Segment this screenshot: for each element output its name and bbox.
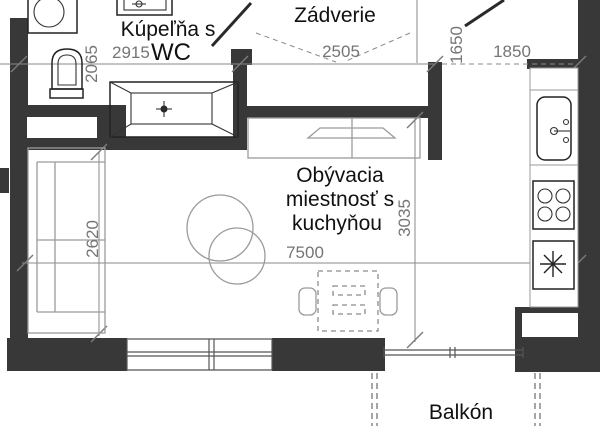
floor-plan: Kúpeľňa s 2915 WC 2065 Zádverie 2505 165…: [0, 0, 600, 426]
place-setting: [333, 305, 365, 314]
dining-table: [318, 271, 378, 331]
washing-machine-drum: [34, 0, 64, 27]
wall-bottom-left-pier: [7, 338, 127, 371]
living-depth-dim: 3035: [395, 199, 414, 237]
toilet-seat: [58, 55, 76, 85]
washing-machine-icon: [28, 0, 77, 33]
kitchen-width-dim: 1850: [493, 42, 531, 61]
wall-bathroom-bottom: [100, 137, 247, 150]
wall-bottom-middle-pier: [272, 338, 385, 371]
living-width-dim: 7500: [286, 243, 324, 262]
bathroom-label-wc: WC: [151, 39, 191, 66]
wall-left-stub: [0, 168, 9, 193]
balcony-door: [384, 347, 523, 358]
washbasin-outer: [117, 0, 172, 15]
washbasin-icon: [117, 0, 172, 15]
bathtub-slope: [110, 82, 131, 93]
bathroom-width-dim: 2915: [112, 43, 150, 62]
place-setting: [333, 286, 365, 295]
hall-label: Zádverie: [294, 4, 376, 27]
sofa-side-dim: 2620: [83, 220, 102, 258]
window-living: [127, 339, 272, 370]
tv-sideboard: [248, 118, 420, 158]
floor-plan-drawing: Kúpeľňa s 2915 WC 2065 Zádverie 2505 165…: [0, 0, 600, 426]
dining-chair: [380, 288, 397, 315]
washbasin-inner: [124, 0, 166, 10]
living-label-line1: Obývacia: [296, 164, 384, 187]
wall-bathroom-right: [233, 58, 247, 150]
kitchen-fixtures: [530, 68, 578, 307]
bathtub-icon: [110, 82, 238, 137]
utility-niche: [522, 313, 578, 337]
bathroom-depth-dim: 2065: [82, 45, 101, 83]
hall-width-dim: 2505: [322, 42, 360, 61]
wall-hall-right: [428, 62, 442, 160]
shaft-niche: [27, 117, 97, 138]
armchair: [187, 195, 265, 284]
wall-hall-bottom: [233, 106, 442, 118]
toilet-base: [50, 89, 83, 98]
balcony-label: Balkón: [429, 401, 493, 424]
bathroom-door-leaf: [212, 3, 251, 46]
dining-chair: [299, 288, 316, 315]
living-label-line3: kuchyňou: [292, 212, 382, 235]
entry-door-leaf: [465, 0, 504, 26]
dining-set: [299, 271, 397, 331]
living-label-line2: miestnosť s: [286, 188, 394, 211]
hall-depth-dim: 1650: [447, 26, 466, 64]
armchair-seat: [187, 195, 253, 261]
toilet-icon: [50, 49, 83, 98]
bathroom-label: Kúpeľňa s: [121, 18, 216, 41]
